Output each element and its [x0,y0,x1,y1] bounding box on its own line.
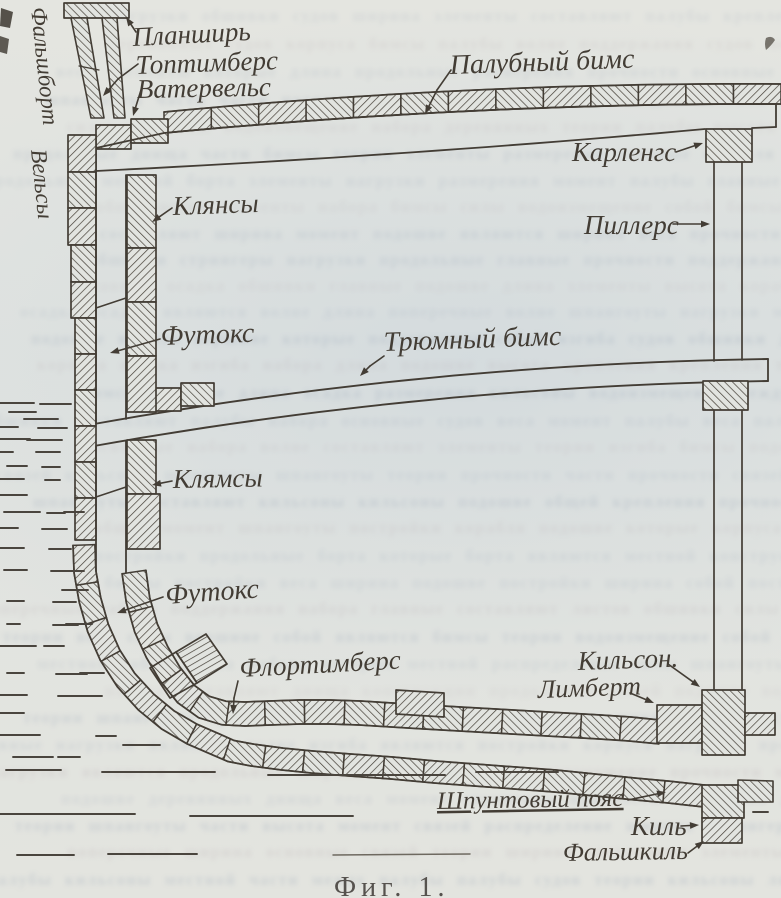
svg-text:Вельсы: Вельсы [26,148,58,220]
svg-text:Ватервельс: Ватервельс [137,72,272,104]
svg-text:Лимберт: Лимберт [536,671,641,704]
svg-text:Фиг. 1.: Фиг. 1. [334,872,449,898]
svg-text:Клямсы: Клямсы [172,462,263,494]
svg-text:Клянсы: Клянсы [171,188,259,221]
svg-text:Флортимберс: Флортимберс [239,645,402,683]
svg-text:Футокс: Футокс [164,573,260,610]
svg-text:Фальшборт: Фальшборт [26,6,63,126]
svg-text:Палубный бимс: Палубный бимс [448,44,635,81]
svg-text:Трюмный бимс: Трюмный бимс [383,321,562,358]
svg-text:Фальшкиль: Фальшкиль [563,836,689,867]
svg-text:Пиллерс: Пиллерс [583,210,679,240]
svg-text:Футокс: Футокс [160,318,255,352]
svg-text:Шпунтовый пояс: Шпунтовый пояс [436,785,624,815]
svg-text:Карленгс: Карленгс [571,137,676,167]
